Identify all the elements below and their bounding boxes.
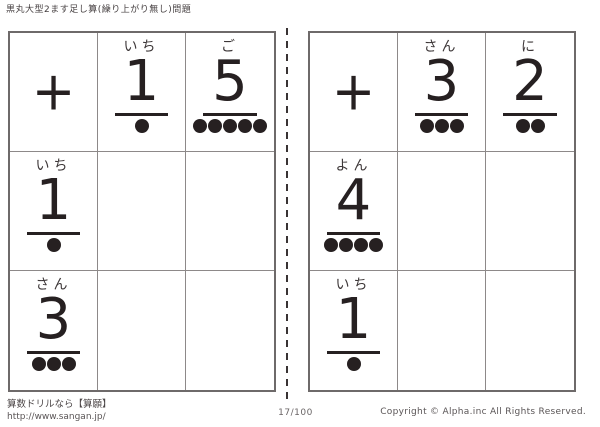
black-dot [420,119,434,133]
footer-page-number: 17/100 [258,408,333,418]
answer-cell [486,271,574,390]
black-dot [193,119,207,133]
footer-site-line: 算数ドリルなら【算願】 [7,399,112,411]
addend-cell: いち1 [98,33,186,152]
answer-cell [398,152,486,271]
addend-digit-underlined: 3 [415,55,469,116]
addition-grid-right: +さん3に2よん4いち1 [308,31,576,392]
dot-row [324,238,383,252]
black-dot [208,119,222,133]
footer-site-info: 算数ドリルなら【算願】 http://www.sangan.jp/ [7,399,112,423]
black-dot [435,119,449,133]
dot-row [47,238,61,252]
plus-operator: + [32,65,76,118]
black-dot [47,357,61,371]
answer-cell [186,152,274,271]
black-dot [369,238,383,252]
addend-digit-underlined: 1 [327,293,381,354]
footer-copyright: Copyright © Alpha.inc All Rights Reserve… [380,407,586,417]
addend-cell: よん4 [310,152,398,271]
operator-cell: + [310,33,398,152]
black-dot [339,238,353,252]
black-dot [531,119,545,133]
addend-cell: ご5 [186,33,274,152]
black-dot [62,357,76,371]
addend-cell: いち1 [10,152,98,271]
black-dot [253,119,267,133]
dot-row [193,119,267,133]
answer-cell [98,271,186,390]
addend-cell: さん3 [10,271,98,390]
page-divider-dashed-line [286,28,288,400]
page-title: 黒丸大型2ます足し算(繰り上がり無し)問題 [6,2,191,15]
addend-digit-underlined: 3 [27,293,81,354]
black-dot [135,119,149,133]
black-dot [238,119,252,133]
addend-cell: に2 [486,33,574,152]
answer-cell [98,152,186,271]
addend-digit-underlined: 1 [27,174,81,235]
addend-digit-underlined: 5 [203,55,257,116]
answer-cell [398,271,486,390]
black-dot [223,119,237,133]
addend-cell: さん3 [398,33,486,152]
black-dot [516,119,530,133]
operator-cell: + [10,33,98,152]
black-dot [324,238,338,252]
dot-row [516,119,545,133]
addend-cell: いち1 [310,271,398,390]
addend-digit-underlined: 4 [327,174,381,235]
black-dot [354,238,368,252]
black-dot [47,238,61,252]
black-dot [347,357,361,371]
black-dot [450,119,464,133]
answer-cell [486,152,574,271]
answer-cell [186,271,274,390]
black-dot [32,357,46,371]
dot-row [135,119,149,133]
addend-digit-underlined: 2 [503,55,557,116]
worksheet-page: 黒丸大型2ます足し算(繰り上がり無し)問題 +いち1ご5いち1さん3 +さん3に… [0,0,600,427]
addition-grid-left: +いち1ご5いち1さん3 [8,31,276,392]
dot-row [347,357,361,371]
footer-site-url: http://www.sangan.jp/ [7,411,112,423]
plus-operator: + [332,65,376,118]
addend-digit-underlined: 1 [115,55,169,116]
dot-row [420,119,464,133]
dot-row [32,357,76,371]
